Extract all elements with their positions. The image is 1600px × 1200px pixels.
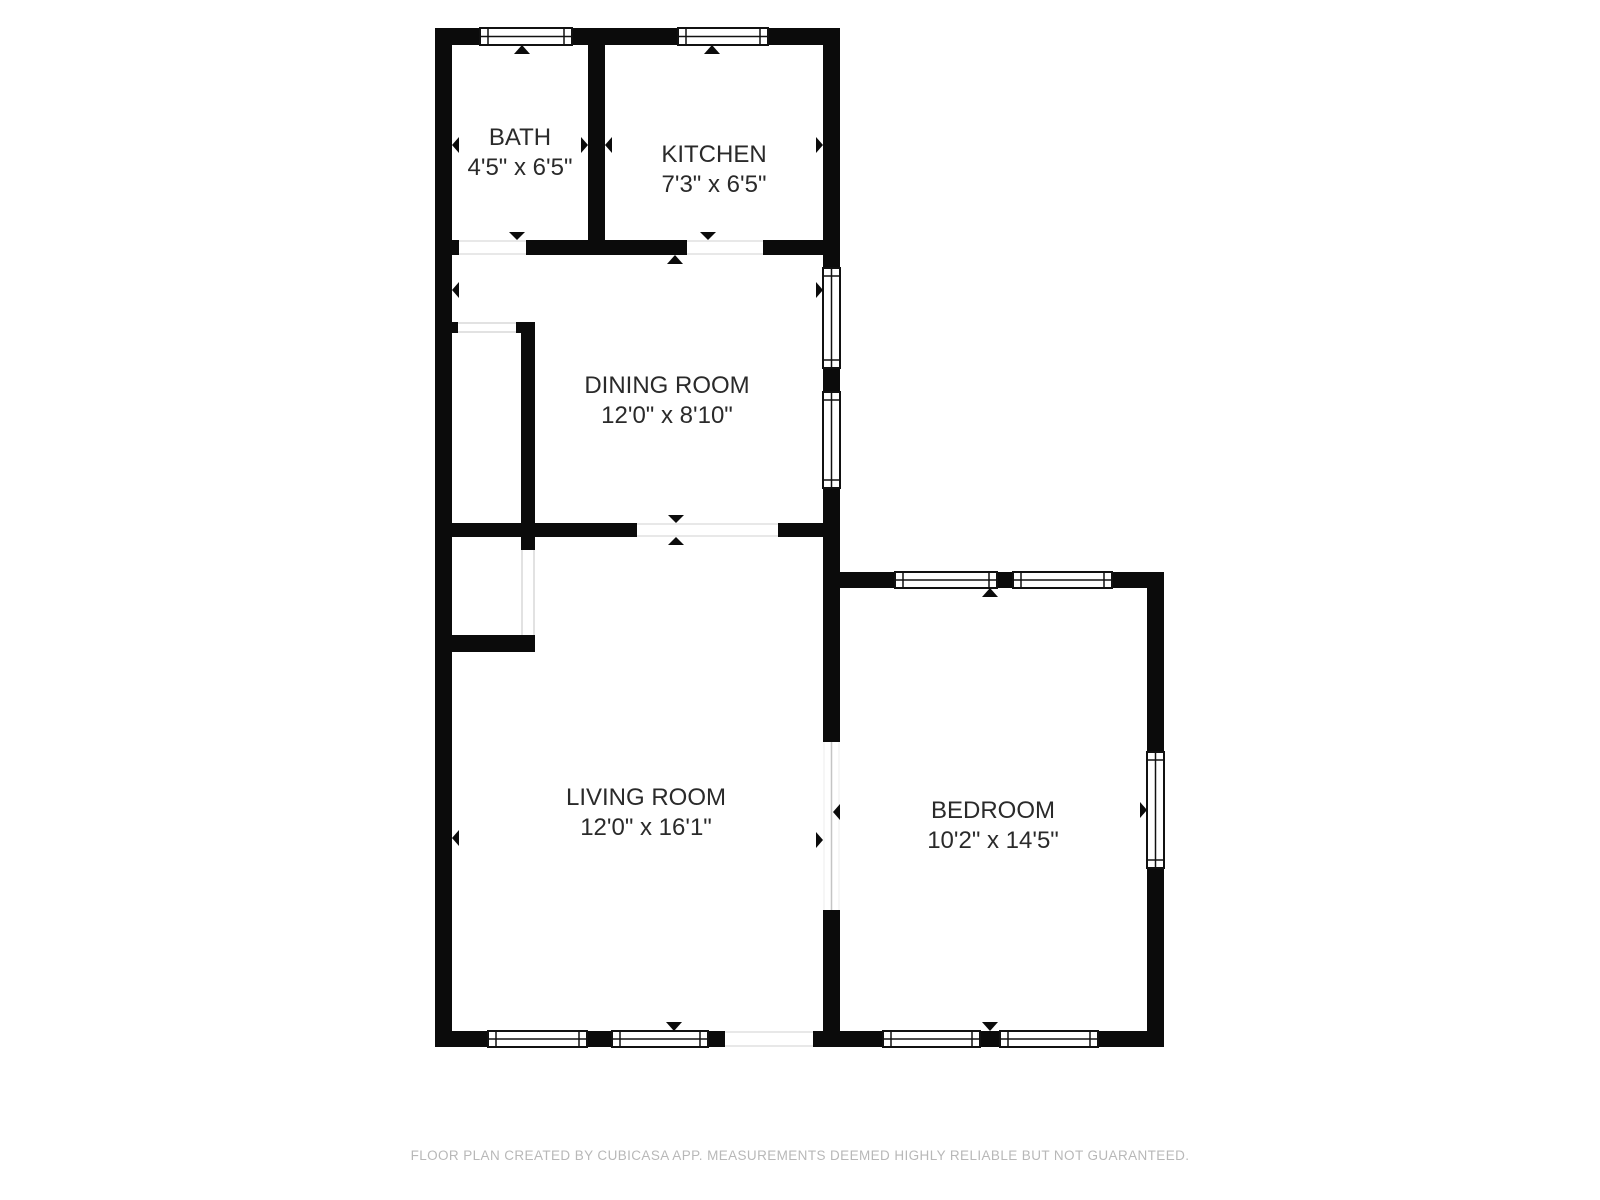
opening-kitchen-door [687,241,763,254]
wall-dining-bottom-a [435,523,637,537]
room-label-bath: BATH 4'5" x 6'5" [468,123,573,183]
wall-bottom-c [708,1031,725,1047]
opening-dining-living [637,524,778,536]
marker-down-kitchen-door [700,232,716,240]
closet-upper-cap [516,322,535,333]
closet-upper-stub [452,322,458,333]
opening-living-bottom [725,1032,813,1046]
marker-right-bedroom [1140,802,1147,818]
wall-right-column-d [823,910,840,1047]
closet-upper-door-line [458,323,516,332]
marker-down-dining-bottom-door [668,515,684,523]
window-bath-top [480,28,572,45]
wall-bedroom-right-b [1147,868,1164,1047]
wall-bedroom-top-b [997,572,1013,588]
closet-upper-right-wall [521,333,535,537]
window-living-bottom-2 [612,1031,708,1047]
room-name: BEDROOM [927,796,1059,826]
opening-living-bedroom-door [824,742,839,910]
room-dimensions: 12'0" x 16'1" [566,813,726,843]
wall-right-column-a [823,28,840,268]
room-dimensions: 12'0" x 8'10" [584,401,749,431]
closet-lower-bottom-wall [435,635,535,652]
wall-bedroom-right-a [1147,572,1164,752]
marker-right-dining [816,282,823,298]
wall-bedroom-top-a [823,572,895,588]
window-living-bottom-1 [488,1031,587,1047]
wall-bottom-f [1098,1031,1164,1047]
wall-bottom-e [980,1031,1000,1047]
marker-up-bath-window [514,45,530,54]
marker-right-bath [581,137,588,153]
room-label-living-room: LIVING ROOM 12'0" x 16'1" [566,783,726,843]
closet-lower-stub [521,537,535,550]
marker-left-bedroom [833,804,840,820]
room-name: KITCHEN [661,140,766,170]
door-markers [452,45,1147,1031]
marker-up-living-top-door [668,537,684,545]
window-bedroom-right [1147,752,1164,868]
window-dining-right-2 [823,392,840,488]
window-dining-right-1 [823,268,840,368]
footer-disclaimer: FLOOR PLAN CREATED BY CUBICASA APP. MEAS… [0,1148,1600,1163]
marker-left-bath [452,137,459,153]
window-bedroom-top-2 [1013,572,1112,588]
window-bedroom-top-1 [895,572,997,588]
wall-dining-bottom-b [778,523,840,537]
windows [480,28,1164,1047]
wall-right-column-b [823,368,840,392]
window-bedroom-bottom-2 [1000,1031,1098,1047]
wall-left-outer [435,28,452,1047]
window-kitchen-top [678,28,768,45]
room-label-bedroom: BEDROOM 10'2" x 14'5" [927,796,1059,856]
marker-up-bedroom-top [982,588,998,597]
marker-right-kitchen [816,137,823,153]
marker-left-living [452,830,459,846]
room-name: DINING ROOM [584,371,749,401]
marker-down-bedroom-bottom [982,1022,998,1031]
marker-right-living [816,832,823,848]
room-dimensions: 4'5" x 6'5" [468,153,573,183]
opening-bath-door [459,241,526,254]
wall-dining-top-a [435,240,459,255]
room-name: LIVING ROOM [566,783,726,813]
wall-bottom-a [435,1031,488,1047]
wall-bottom-b [587,1031,612,1047]
room-dimensions: 7'3" x 6'5" [661,170,766,200]
room-label-kitchen: KITCHEN 7'3" x 6'5" [661,140,766,200]
wall-dining-top-b [526,240,687,255]
wall-bottom-d [813,1031,883,1047]
marker-up-dining-top [667,255,683,264]
marker-down-living-bottom [666,1022,682,1031]
wall-bath-kitchen-divider [588,28,605,255]
room-dimensions: 10'2" x 14'5" [927,826,1059,856]
marker-up-kitchen-window [704,45,720,54]
closet-lower-door-line [522,550,534,635]
marker-down-bath-door [509,232,525,240]
marker-left-kitchen [605,137,612,153]
room-name: BATH [468,123,573,153]
marker-left-dining [452,282,459,298]
room-label-dining-room: DINING ROOM 12'0" x 8'10" [584,371,749,431]
floor-plan: BATH 4'5" x 6'5" KITCHEN 7'3" x 6'5" DIN… [0,0,1600,1200]
window-bedroom-bottom-1 [883,1031,980,1047]
floor-plan-canvas [0,0,1600,1200]
